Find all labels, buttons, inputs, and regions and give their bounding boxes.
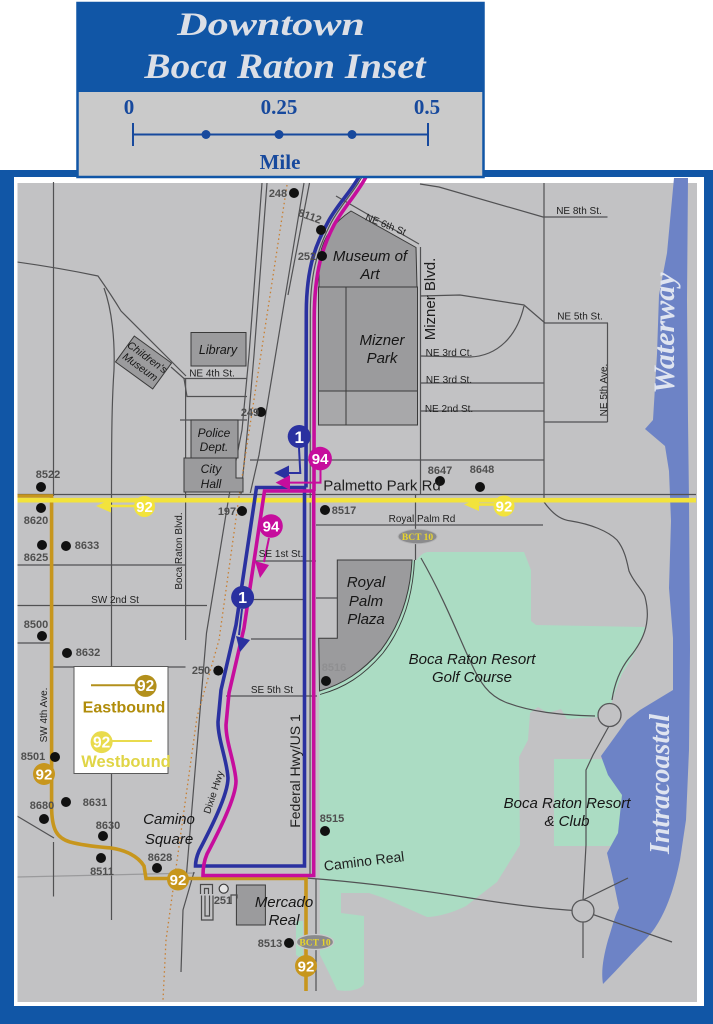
svg-text:Mizner Blvd.: Mizner Blvd. [422, 258, 439, 341]
svg-text:8513: 8513 [258, 938, 282, 950]
svg-text:SW 2nd St: SW 2nd St [91, 595, 139, 606]
svg-text:248: 248 [269, 188, 287, 200]
svg-text:BCT 10: BCT 10 [402, 533, 433, 543]
svg-text:Library: Library [199, 343, 238, 357]
svg-text:NE 4th St.: NE 4th St. [189, 369, 235, 380]
svg-text:250: 250 [192, 665, 210, 677]
svg-text:8680: 8680 [30, 800, 54, 812]
svg-text:Waterway: Waterway [648, 272, 681, 394]
svg-text:8500: 8500 [24, 619, 48, 631]
svg-text:8625: 8625 [24, 552, 48, 564]
svg-text:Mile: Mile [260, 150, 301, 174]
svg-text:Museum of: Museum of [333, 248, 409, 265]
svg-text:Square: Square [145, 831, 193, 848]
svg-text:Boca Raton Blvd.: Boca Raton Blvd. [174, 512, 185, 589]
svg-text:Mercado: Mercado [255, 894, 313, 911]
svg-text:249: 249 [241, 407, 259, 419]
svg-text:Eastbound: Eastbound [83, 700, 166, 717]
svg-text:BCT 10: BCT 10 [299, 939, 330, 949]
svg-text:Plaza: Plaza [347, 611, 385, 628]
svg-text:Downtown: Downtown [176, 6, 365, 43]
svg-text:0.5: 0.5 [414, 95, 440, 119]
svg-text:1: 1 [238, 590, 247, 607]
svg-text:Golf Course: Golf Course [432, 669, 512, 686]
svg-text:92: 92 [36, 767, 53, 784]
svg-text:NE 8th St.: NE 8th St. [556, 206, 602, 217]
svg-text:92: 92 [298, 959, 315, 976]
svg-text:Art: Art [359, 266, 380, 283]
svg-text:Police: Police [198, 426, 231, 440]
svg-text:8620: 8620 [24, 515, 48, 527]
svg-text:Real: Real [269, 912, 301, 929]
svg-text:Westbound: Westbound [81, 753, 171, 771]
svg-text:8631: 8631 [83, 797, 107, 809]
svg-text:8630: 8630 [96, 820, 120, 832]
svg-text:92: 92 [136, 499, 153, 516]
svg-text:Intracoastal: Intracoastal [645, 714, 676, 855]
svg-text:Boca Raton Inset: Boca Raton Inset [143, 46, 427, 86]
svg-text:8647: 8647 [428, 465, 452, 477]
svg-text:8517: 8517 [332, 505, 356, 517]
svg-text:City: City [201, 462, 223, 476]
svg-text:Mizner: Mizner [359, 332, 405, 349]
svg-text:NE 3rd St.: NE 3rd St. [426, 375, 472, 386]
svg-text:Camino: Camino [143, 811, 195, 828]
svg-text:Palmetto Park Rd: Palmetto Park Rd [323, 478, 441, 495]
svg-text:8515: 8515 [320, 813, 344, 825]
svg-text:1: 1 [294, 428, 303, 447]
svg-text:Dept.: Dept. [200, 440, 229, 454]
svg-text:8628: 8628 [148, 852, 172, 864]
svg-text:251: 251 [214, 895, 232, 907]
svg-text:Royal Palm Rd: Royal Palm Rd [389, 514, 456, 525]
svg-text:8632: 8632 [76, 647, 100, 659]
svg-text:0: 0 [124, 95, 135, 119]
svg-text:NE 5th St.: NE 5th St. [557, 312, 603, 323]
svg-text:92: 92 [137, 678, 154, 695]
svg-text:Federal Hwy/US 1: Federal Hwy/US 1 [287, 714, 303, 828]
svg-text:8633: 8633 [75, 540, 99, 552]
svg-text:Palm: Palm [349, 593, 383, 610]
svg-text:92: 92 [170, 872, 187, 889]
svg-text:92: 92 [93, 734, 110, 751]
svg-text:252: 252 [298, 251, 316, 263]
svg-text:8648: 8648 [470, 464, 494, 476]
svg-text:Royal: Royal [347, 574, 386, 591]
svg-text:SE 5th St: SE 5th St [251, 685, 293, 696]
svg-text:92: 92 [496, 499, 513, 516]
svg-text:SE 1st St.: SE 1st St. [259, 549, 303, 560]
svg-text:197: 197 [218, 506, 236, 518]
svg-text:8522: 8522 [36, 469, 60, 481]
svg-text:94: 94 [312, 451, 329, 468]
svg-text:Hall: Hall [201, 477, 222, 491]
svg-text:NE 5th Ave.: NE 5th Ave. [599, 364, 610, 417]
svg-text:SW 4th Ave.: SW 4th Ave. [39, 688, 50, 743]
svg-text:Park: Park [367, 350, 399, 367]
svg-text:Boca Raton Resort: Boca Raton Resort [504, 795, 632, 812]
svg-text:0.25: 0.25 [261, 95, 298, 119]
svg-text:& Club: & Club [544, 813, 589, 830]
svg-text:NE 2nd St.: NE 2nd St. [425, 404, 473, 415]
svg-text:8516: 8516 [322, 662, 346, 674]
svg-text:8511: 8511 [90, 866, 114, 878]
svg-text:NE 3rd Ct.: NE 3rd Ct. [426, 348, 473, 359]
svg-text:Boca Raton Resort: Boca Raton Resort [409, 651, 537, 668]
svg-text:94: 94 [263, 519, 280, 536]
svg-text:8501: 8501 [21, 751, 45, 763]
